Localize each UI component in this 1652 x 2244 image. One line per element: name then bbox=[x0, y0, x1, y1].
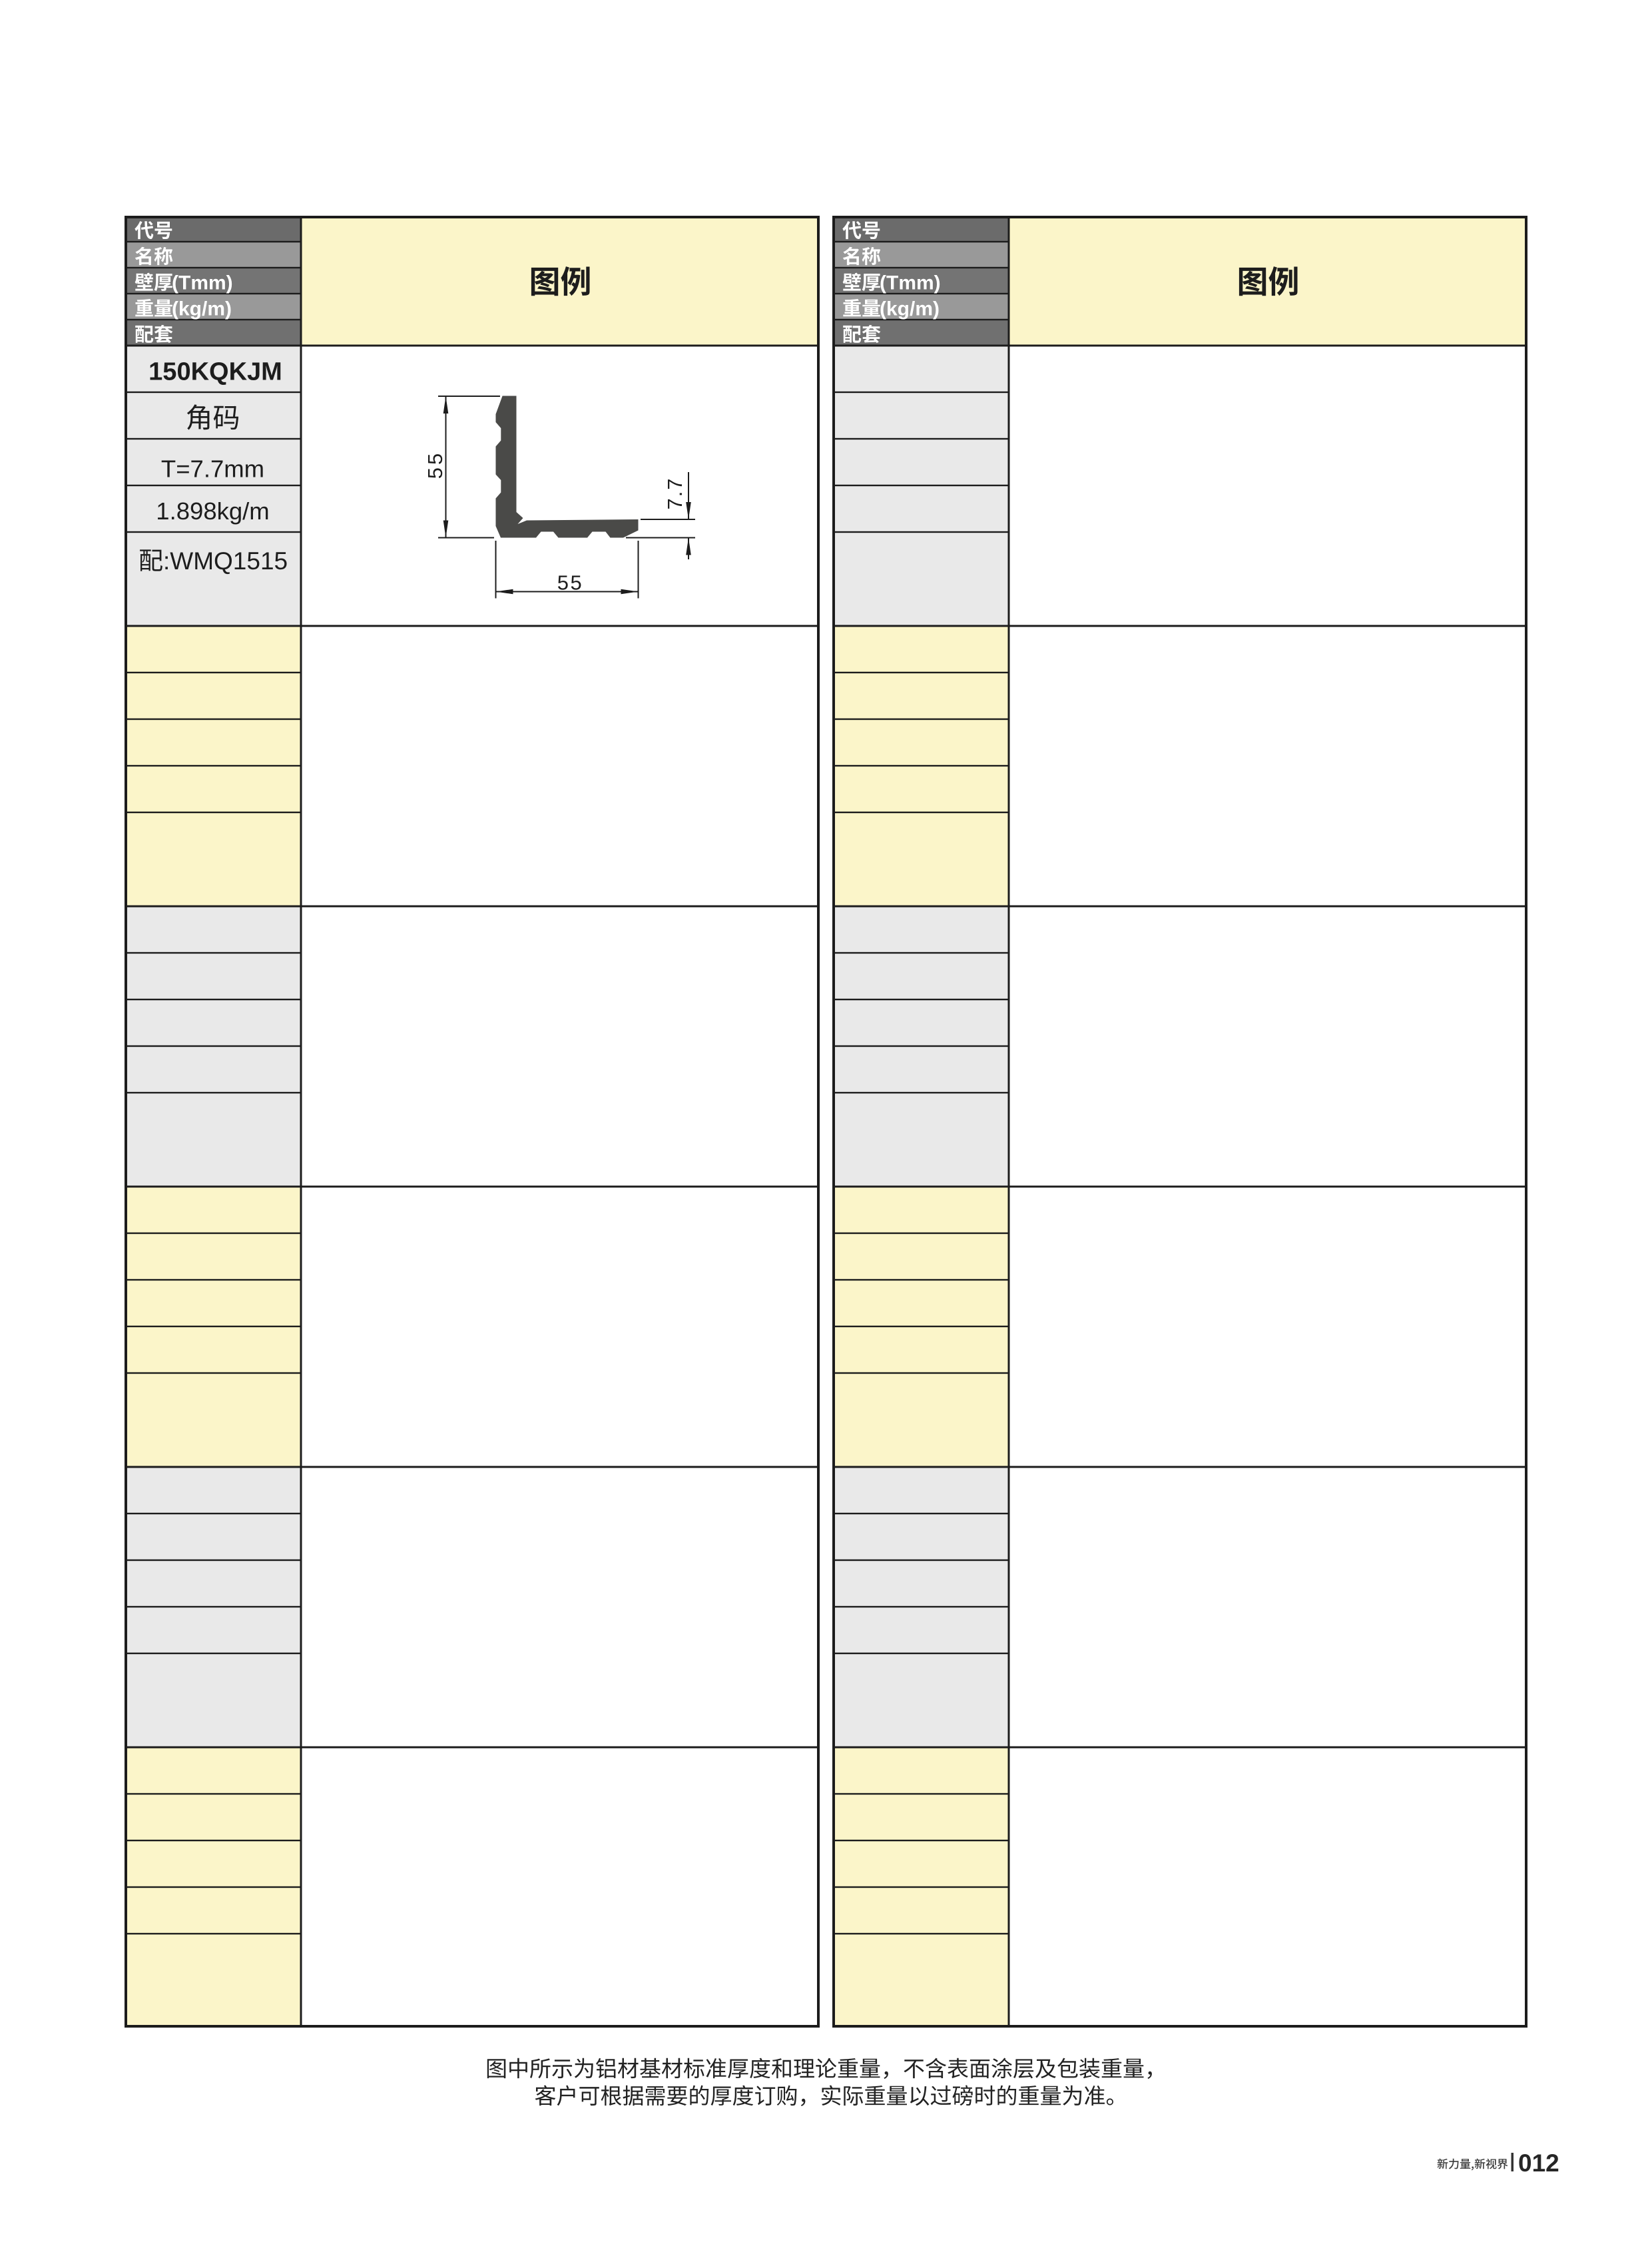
svg-text::WMQ1515: :WMQ1515 bbox=[163, 547, 288, 575]
svg-text:55: 55 bbox=[557, 571, 583, 595]
svg-text:1.898kg/m: 1.898kg/m bbox=[156, 497, 269, 525]
svg-text:T=7.7mm: T=7.7mm bbox=[161, 455, 264, 483]
svg-text:(Tmm): (Tmm) bbox=[172, 272, 233, 294]
svg-text:55: 55 bbox=[423, 451, 447, 479]
svg-text:(kg/m): (kg/m) bbox=[172, 298, 232, 320]
svg-text:012: 012 bbox=[1518, 2149, 1559, 2177]
svg-text:7.7: 7.7 bbox=[663, 477, 687, 509]
svg-text:150KQKJM: 150KQKJM bbox=[148, 358, 282, 386]
